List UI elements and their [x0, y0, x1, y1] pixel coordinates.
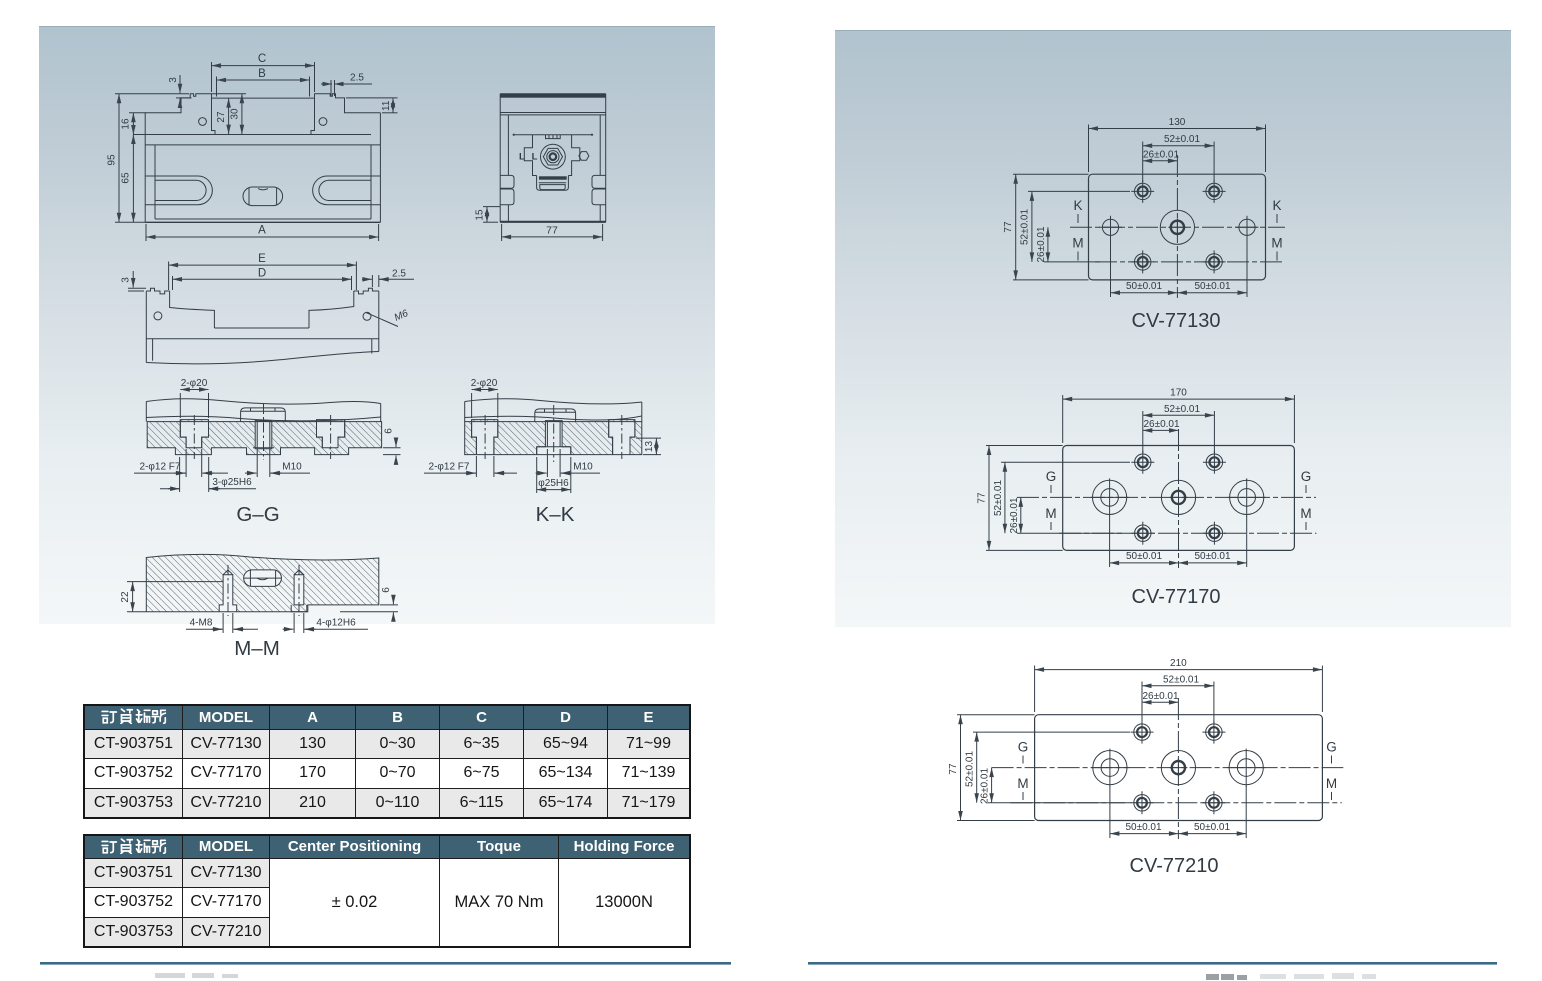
svg-text:φ25H6: φ25H6 [538, 478, 569, 489]
svg-text:26±0.01: 26±0.01 [1036, 226, 1047, 263]
svg-text:G: G [1018, 740, 1029, 755]
svg-text:52±0.01: 52±0.01 [993, 480, 1004, 517]
svg-text:77: 77 [1003, 221, 1014, 233]
svg-text:26±0.01: 26±0.01 [1009, 497, 1020, 534]
svg-text:95: 95 [107, 154, 118, 166]
svg-text:G–G: G–G [236, 503, 279, 526]
svg-text:K–K: K–K [536, 503, 575, 526]
svg-text:52±0.01: 52±0.01 [965, 751, 976, 788]
svg-text:M–M: M–M [234, 637, 280, 660]
svg-text:50±0.01: 50±0.01 [1126, 281, 1163, 292]
svg-text:77: 77 [977, 492, 988, 504]
svg-text:L: L [519, 151, 525, 162]
svg-text:130: 130 [1169, 117, 1186, 128]
svg-text:CV-77130: CV-77130 [1132, 310, 1221, 332]
svg-text:4-φ12H6: 4-φ12H6 [316, 617, 356, 628]
svg-text:G: G [1326, 740, 1337, 755]
svg-text:G: G [1301, 469, 1312, 484]
svg-text:B: B [258, 68, 266, 80]
svg-text:210: 210 [1170, 658, 1187, 669]
svg-text:52±0.01: 52±0.01 [1164, 404, 1201, 415]
svg-text:2-φ12 F7: 2-φ12 F7 [140, 461, 181, 472]
svg-text:A: A [258, 225, 266, 237]
svg-text:50±0.01: 50±0.01 [1194, 281, 1231, 292]
svg-text:M: M [1017, 776, 1028, 791]
svg-text:K: K [1073, 198, 1082, 213]
svg-text:3-φ25H6: 3-φ25H6 [212, 477, 252, 488]
svg-text:22: 22 [120, 591, 131, 603]
svg-text:CV-77210: CV-77210 [1130, 855, 1219, 877]
svg-text:D: D [258, 267, 266, 279]
svg-text:52±0.01: 52±0.01 [1020, 209, 1031, 246]
svg-text:77: 77 [546, 224, 558, 236]
svg-text:M: M [1072, 236, 1083, 251]
svg-text:M10: M10 [282, 461, 302, 472]
svg-text:11: 11 [381, 100, 392, 111]
svg-text:2.5: 2.5 [392, 268, 406, 279]
svg-text:170: 170 [1170, 388, 1187, 399]
svg-text:M: M [1300, 506, 1311, 521]
svg-text:CV-77170: CV-77170 [1132, 586, 1221, 608]
svg-text:65: 65 [121, 172, 132, 184]
svg-text:15: 15 [475, 209, 486, 221]
svg-text:M: M [1326, 776, 1337, 791]
svg-text:50±0.01: 50±0.01 [1194, 551, 1231, 562]
svg-text:16: 16 [121, 118, 132, 130]
svg-text:52±0.01: 52±0.01 [1163, 674, 1200, 685]
svg-text:50±0.01: 50±0.01 [1126, 551, 1163, 562]
svg-text:2-φ20: 2-φ20 [181, 378, 208, 389]
svg-text:26±0.01: 26±0.01 [980, 768, 991, 805]
svg-text:6: 6 [384, 428, 395, 434]
svg-text:26±0.01: 26±0.01 [1142, 691, 1179, 702]
svg-text:K: K [1272, 198, 1281, 213]
svg-text:13: 13 [644, 441, 655, 453]
svg-text:26±0.01: 26±0.01 [1143, 419, 1180, 430]
svg-text:3: 3 [121, 277, 132, 283]
svg-text:2-φ20: 2-φ20 [471, 378, 498, 389]
svg-text:M10: M10 [573, 461, 593, 472]
svg-text:3: 3 [168, 77, 179, 83]
svg-text:50±0.01: 50±0.01 [1125, 822, 1162, 833]
svg-text:2-φ12 F7: 2-φ12 F7 [429, 461, 470, 472]
svg-text:L: L [532, 151, 538, 162]
svg-text:M: M [1045, 506, 1056, 521]
svg-text:2.5: 2.5 [350, 73, 364, 84]
svg-text:C: C [258, 53, 266, 65]
svg-text:77: 77 [948, 763, 959, 775]
svg-text:6: 6 [381, 587, 392, 593]
svg-text:26±0.01: 26±0.01 [1143, 149, 1180, 160]
svg-text:52±0.01: 52±0.01 [1164, 134, 1201, 145]
svg-text:4-M8: 4-M8 [190, 617, 213, 628]
svg-text:27: 27 [216, 111, 227, 123]
svg-text:50±0.01: 50±0.01 [1194, 822, 1231, 833]
svg-text:30: 30 [229, 108, 240, 120]
svg-text:E: E [258, 253, 266, 265]
svg-text:G: G [1046, 469, 1057, 484]
svg-text:M: M [1271, 236, 1282, 251]
